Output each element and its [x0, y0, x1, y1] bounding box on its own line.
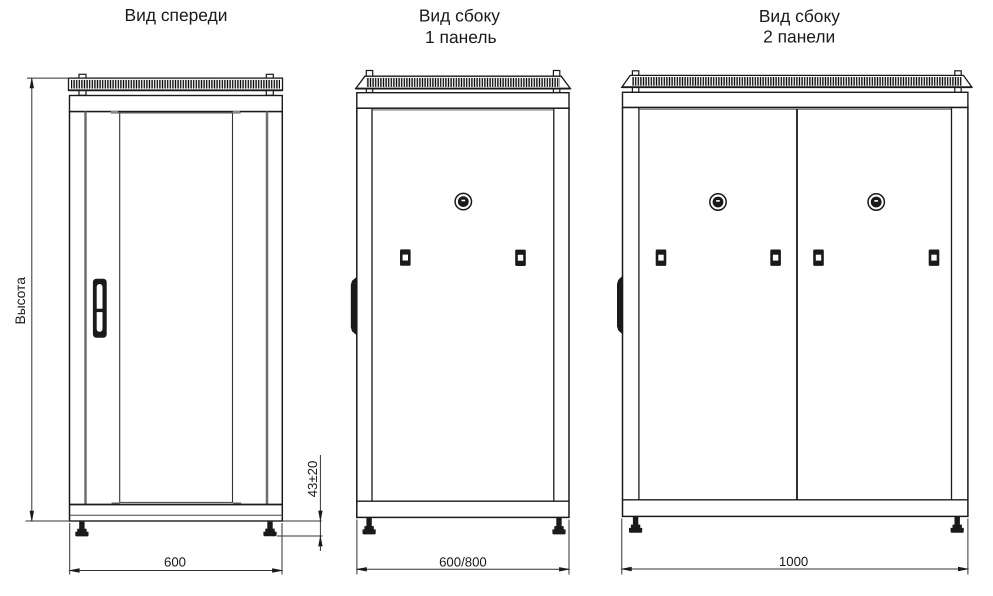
- svg-text:43±20: 43±20: [305, 461, 320, 498]
- svg-text:Вид спереди: Вид спереди: [125, 5, 228, 25]
- svg-text:600/800: 600/800: [439, 555, 487, 570]
- svg-text:Высота: Высота: [13, 277, 28, 325]
- svg-text:1 панель: 1 панель: [425, 27, 497, 47]
- svg-text:Вид сбоку: Вид сбоку: [419, 6, 500, 26]
- svg-text:1000: 1000: [779, 554, 808, 569]
- svg-text:Вид сбоку: Вид сбоку: [759, 6, 840, 26]
- svg-text:2 панели: 2 панели: [763, 27, 835, 47]
- svg-text:600: 600: [164, 555, 186, 570]
